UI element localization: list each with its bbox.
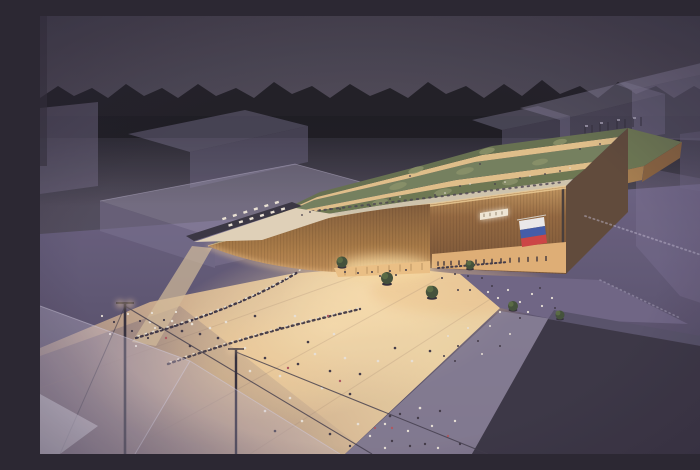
render-image: Aerial dusk rendering of an illuminated … <box>40 16 700 454</box>
scene-svg <box>40 16 700 454</box>
